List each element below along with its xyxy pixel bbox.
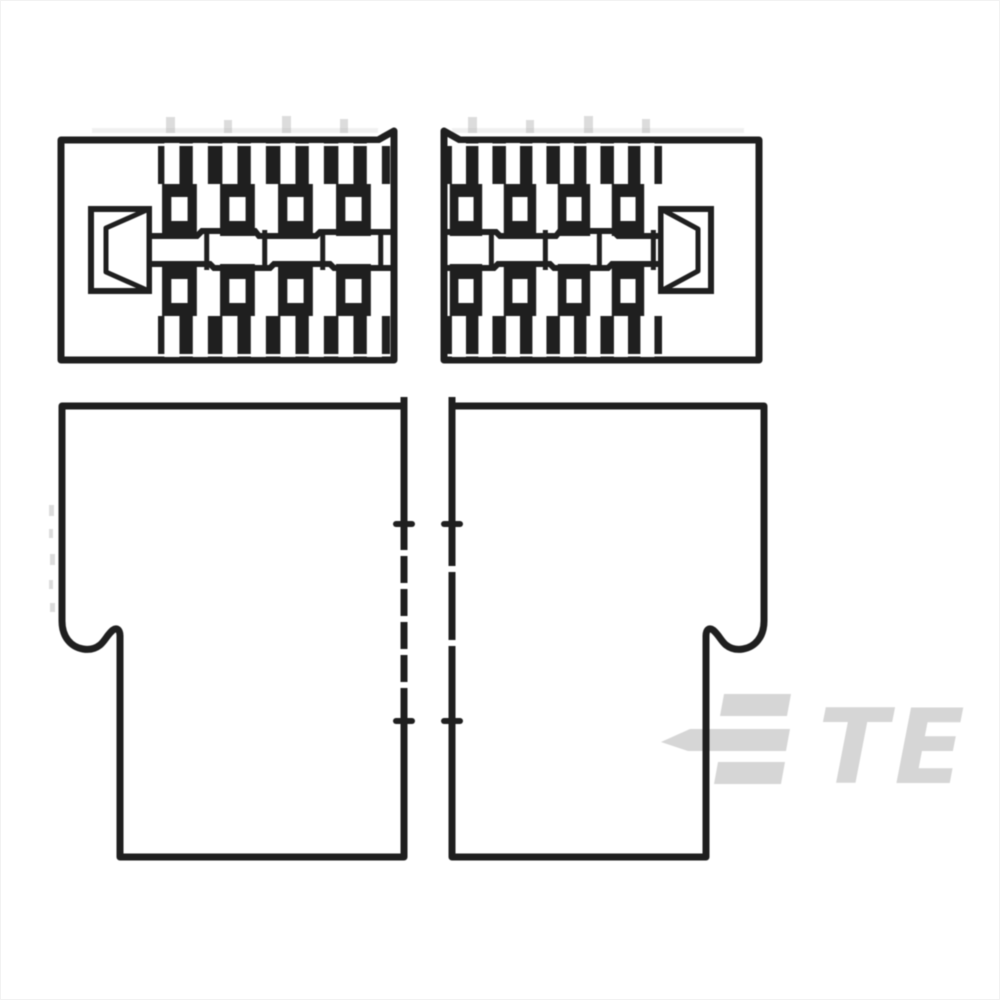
contact-window — [229, 197, 245, 221]
bottom-right-housing-profile — [444, 397, 764, 857]
profile-outline — [452, 406, 764, 857]
smudge — [642, 119, 650, 133]
cavity-slot — [309, 316, 324, 357]
cavity-slot — [164, 316, 179, 357]
smudge — [584, 116, 593, 133]
contact-window — [458, 279, 473, 303]
cavity-slot — [586, 316, 600, 357]
smudge — [526, 120, 534, 133]
contact-window — [171, 279, 187, 303]
smudge — [50, 603, 55, 612]
contact-window — [512, 279, 527, 303]
cavity-slot — [280, 316, 295, 357]
dash-gap — [399, 616, 409, 622]
top-right-housing-section — [442, 131, 759, 360]
connector-technical-drawing: TE — [0, 0, 1000, 1000]
cavity-slot — [452, 316, 466, 357]
smudge — [224, 120, 232, 133]
smudge — [452, 128, 744, 133]
contact-window — [512, 197, 527, 221]
cavity-slot — [560, 143, 574, 184]
cavity-slot — [506, 316, 520, 357]
te-logo-bar-bottom — [714, 762, 785, 784]
te-logo-bar-top — [720, 694, 791, 716]
smudge — [50, 554, 55, 565]
cavity-slot — [478, 316, 492, 357]
smudge — [49, 505, 54, 516]
contact-window — [566, 197, 581, 221]
cavity-slot — [251, 143, 266, 184]
contact-window — [345, 197, 361, 221]
cavity-slot — [251, 316, 266, 357]
cavity-slot — [532, 316, 546, 357]
smudge — [49, 529, 53, 538]
contact-window — [620, 279, 635, 303]
bottom-left-housing-profile — [62, 397, 412, 857]
contact-window — [566, 279, 581, 303]
cavity-slot — [309, 143, 324, 184]
cavity-slot — [367, 316, 382, 357]
cavity-slot — [338, 143, 353, 184]
cavity-slot — [478, 143, 492, 184]
contact-window — [287, 279, 303, 303]
product-drawing-canvas: TE — [0, 0, 1000, 1000]
contact-window — [458, 197, 473, 221]
cavity-slot — [614, 143, 628, 184]
smudge — [92, 128, 378, 133]
cavity-slot — [338, 316, 353, 357]
cavity-slot — [164, 143, 179, 184]
contact-window — [620, 197, 635, 221]
smudge — [282, 116, 291, 133]
cavity-slot — [222, 143, 237, 184]
smudge — [166, 117, 175, 133]
contact-window — [229, 279, 245, 303]
cavity-slot — [560, 316, 574, 357]
smudge — [468, 117, 477, 133]
cavity-slot — [506, 143, 520, 184]
cavity-slot — [193, 316, 208, 357]
profile-outline — [62, 406, 404, 857]
cavity-slot — [614, 316, 628, 357]
dash-gap — [399, 550, 409, 556]
cavity-slot — [280, 143, 295, 184]
cavity-slot — [222, 316, 237, 357]
contact-window — [287, 197, 303, 221]
dash-gap — [399, 649, 409, 655]
smudge — [340, 119, 348, 133]
cavity-slot — [452, 143, 466, 184]
cavity-slot — [586, 143, 600, 184]
cavity-slot — [640, 143, 654, 184]
smudge — [49, 580, 53, 589]
cavity-slot — [640, 316, 654, 357]
dash-gap — [447, 640, 457, 646]
cavity-slot — [532, 143, 546, 184]
top-left-housing-section — [61, 131, 394, 360]
dash-gap — [447, 566, 457, 572]
cavity-slot — [367, 143, 382, 184]
dash-gap — [399, 583, 409, 589]
contact-window — [345, 279, 361, 303]
te-logo-text: TE — [818, 688, 971, 808]
cavity-slot — [193, 143, 208, 184]
dash-gap — [399, 682, 409, 688]
contact-window — [171, 197, 187, 221]
